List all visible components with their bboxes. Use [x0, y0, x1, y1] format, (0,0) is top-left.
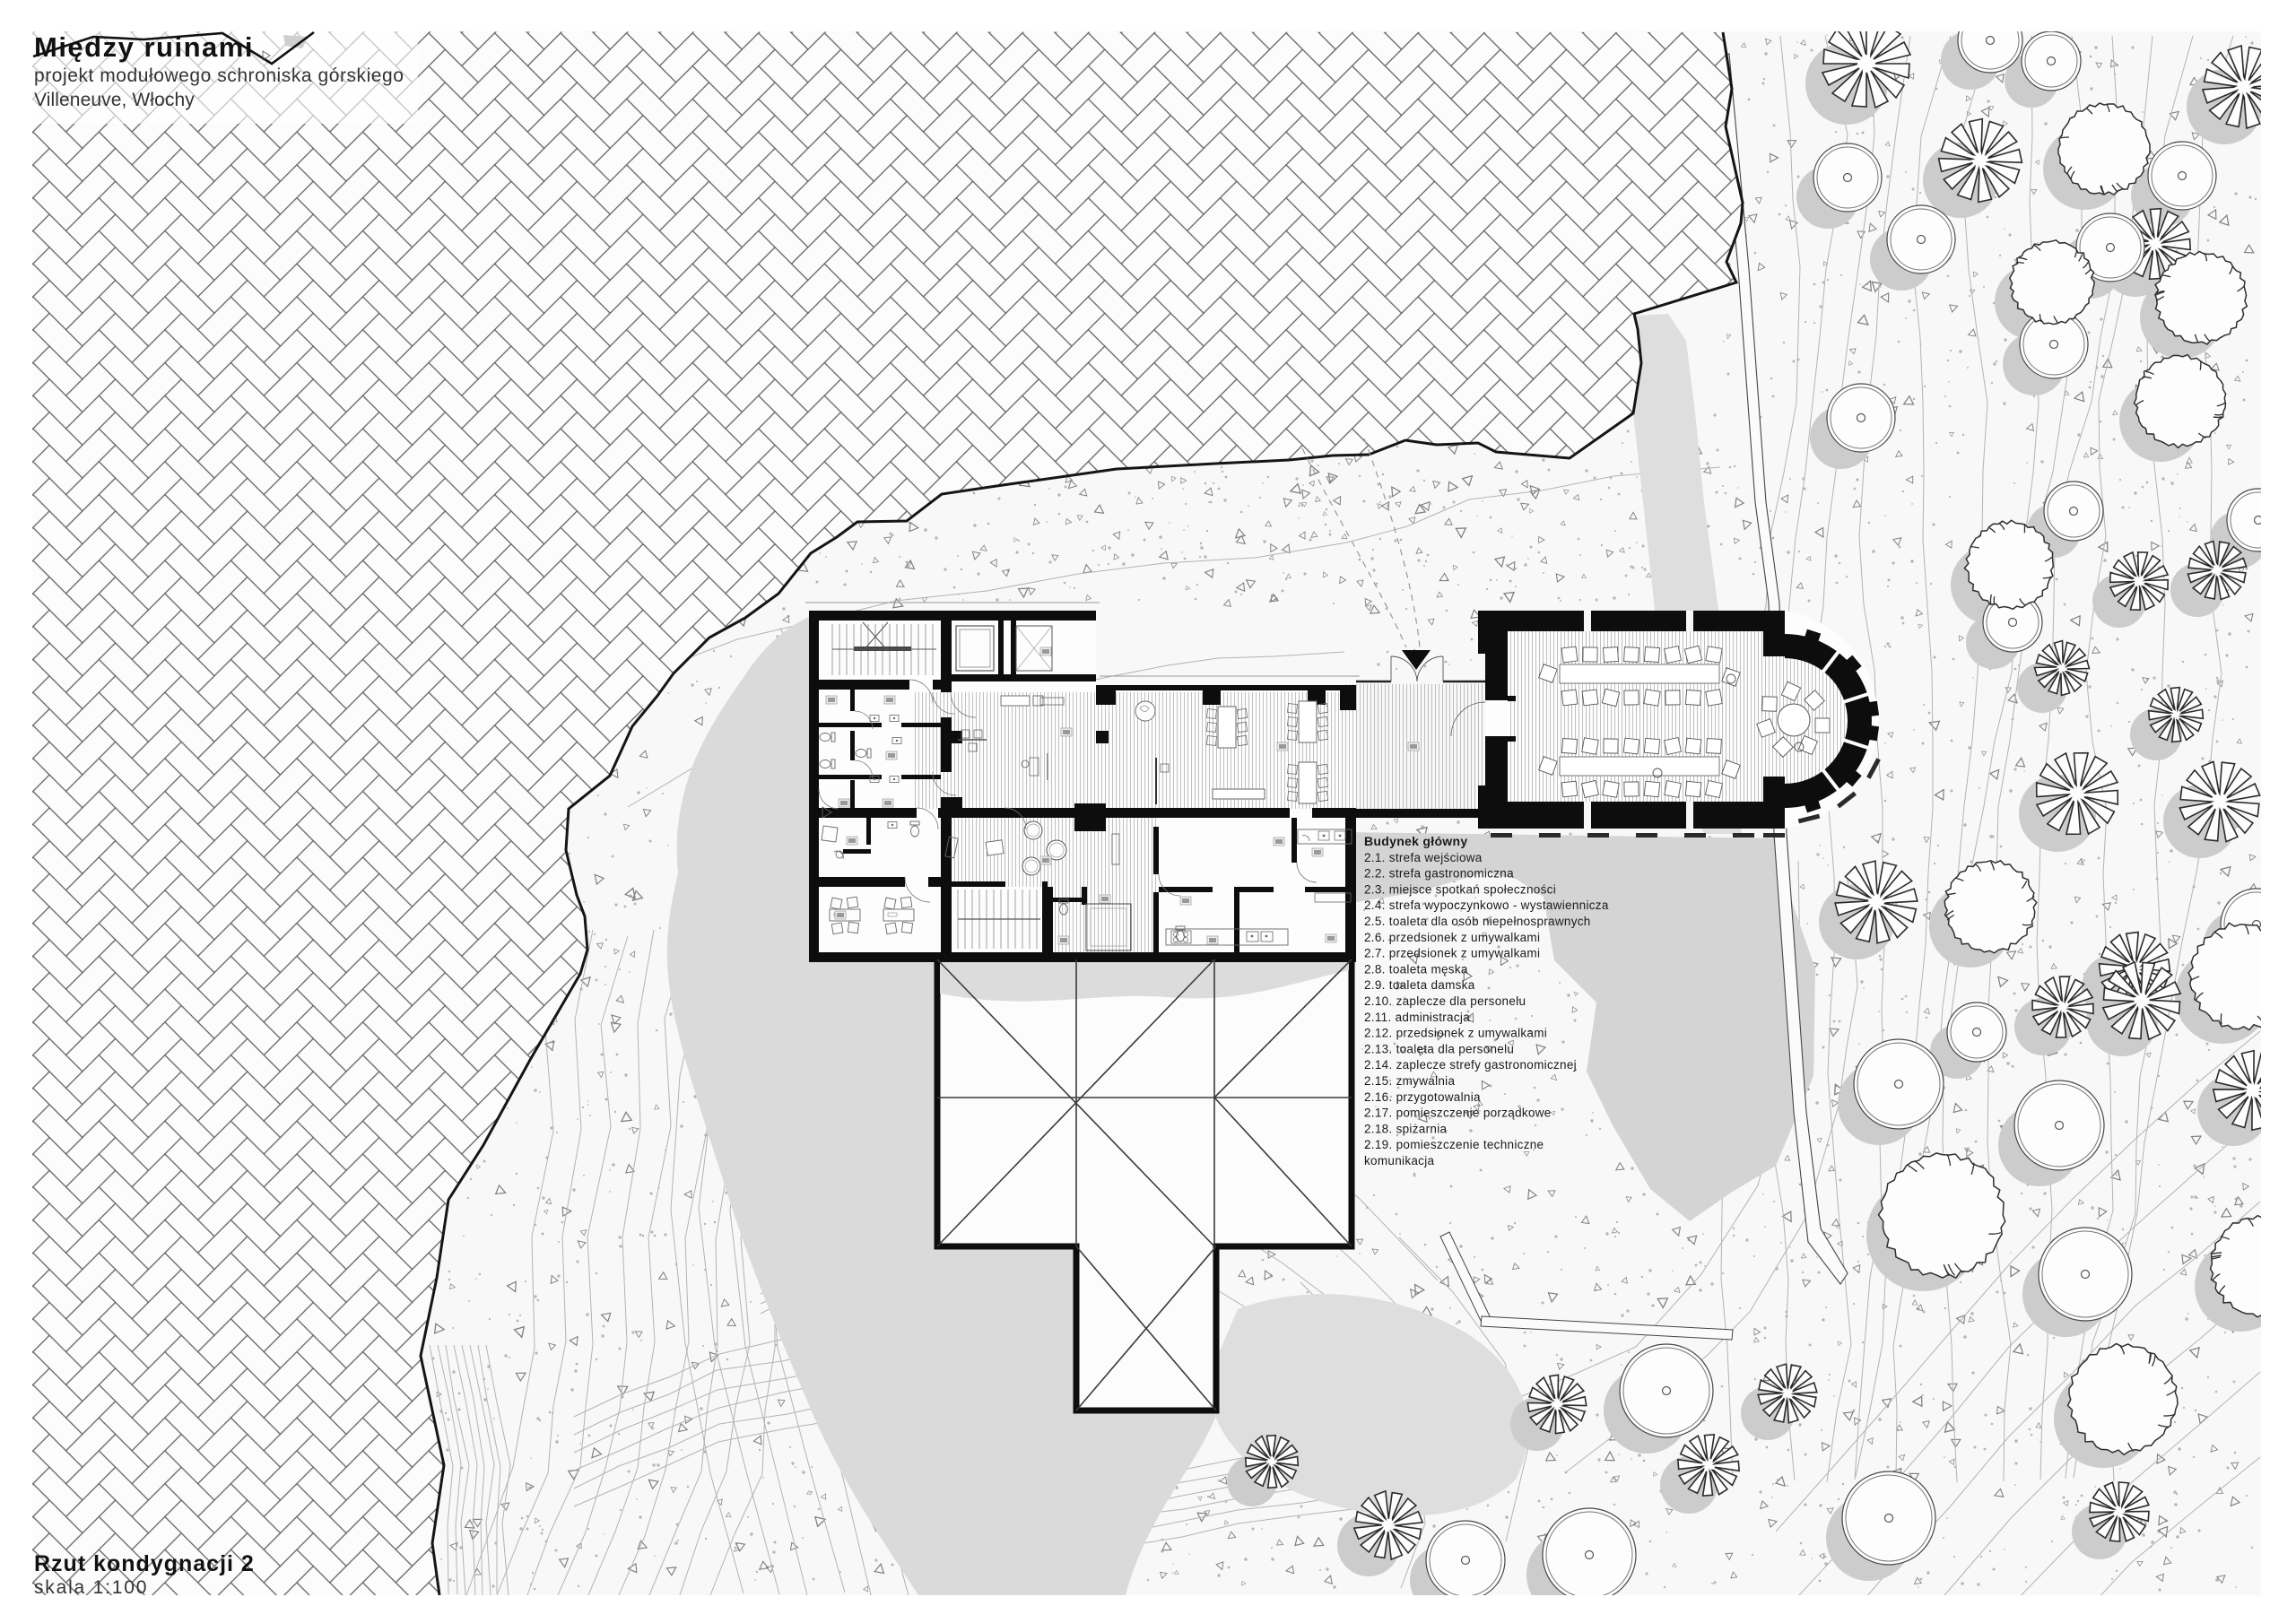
svg-text:2.8. toaleta męska: 2.8. toaleta męska — [1364, 962, 1468, 976]
svg-text:2.5. toaleta dla osób niepełno: 2.5. toaleta dla osób niepełnosprawnych — [1364, 915, 1591, 928]
svg-text:2.13. toaleta dla personelu: 2.13. toaleta dla personelu — [1364, 1042, 1514, 1055]
svg-text:2.15. zmywalnia: 2.15. zmywalnia — [1364, 1074, 1455, 1088]
svg-text:2.9. toaleta damska: 2.9. toaleta damska — [1364, 978, 1475, 992]
svg-text:Budynek główny: Budynek główny — [1364, 834, 1467, 848]
svg-text:komunikacja: komunikacja — [1364, 1154, 1435, 1167]
svg-text:2.11. administracja: 2.11. administracja — [1364, 1011, 1470, 1024]
svg-text:2.3. miejsce spotkań społeczno: 2.3. miejsce spotkań społeczności — [1364, 882, 1556, 896]
svg-text:2.10. zaplecze dla personelu: 2.10. zaplecze dla personelu — [1364, 994, 1526, 1008]
svg-text:2.16. przygotowalnia: 2.16. przygotowalnia — [1364, 1090, 1481, 1104]
svg-text:2.14. zaplecze strefy gastrono: 2.14. zaplecze strefy gastronomicznej — [1364, 1058, 1577, 1072]
svg-text:Villeneuve, Włochy: Villeneuve, Włochy — [34, 90, 195, 110]
svg-text:skala 1:100: skala 1:100 — [34, 1577, 148, 1598]
svg-text:2.12. przedsionek z umywalkami: 2.12. przedsionek z umywalkami — [1364, 1027, 1547, 1040]
svg-text:Rzut kondygnacji 2: Rzut kondygnacji 2 — [34, 1551, 255, 1576]
svg-text:2.2. strefa gastronomiczna: 2.2. strefa gastronomiczna — [1364, 867, 1514, 881]
svg-text:2.6. przedsionek z umywalkami: 2.6. przedsionek z umywalkami — [1364, 931, 1540, 944]
svg-text:2.17. pomieszczenie porządkowe: 2.17. pomieszczenie porządkowe — [1364, 1107, 1552, 1120]
svg-text:2.18. spiżarnia: 2.18. spiżarnia — [1364, 1122, 1447, 1135]
svg-text:2.7. przedsionek z umywalkami: 2.7. przedsionek z umywalkami — [1364, 947, 1540, 960]
svg-text:2.19. pomieszczenie techniczne: 2.19. pomieszczenie techniczne — [1364, 1138, 1544, 1151]
svg-text:2.4. strefa wypoczynkowo - wys: 2.4. strefa wypoczynkowo - wystawiennicz… — [1364, 898, 1609, 912]
svg-text:2.1. strefa wejściowa: 2.1. strefa wejściowa — [1364, 851, 1483, 864]
svg-text:Między ruinami: Między ruinami — [34, 31, 254, 63]
svg-text:projekt modułowego schroniska: projekt modułowego schroniska górskiego — [34, 65, 404, 86]
